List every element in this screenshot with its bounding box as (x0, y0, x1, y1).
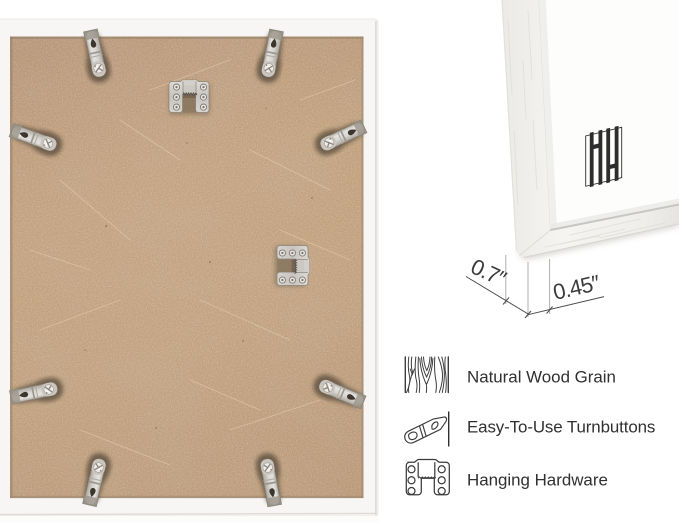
svg-text:Natural Wood Grain: Natural Wood Grain (467, 367, 616, 386)
svg-text:0.7″: 0.7″ (467, 254, 510, 292)
svg-text:Hanging Hardware: Hanging Hardware (467, 470, 608, 489)
svg-text:0.45″: 0.45″ (551, 270, 603, 305)
svg-text:Easy-To-Use Turnbuttons: Easy-To-Use Turnbuttons (467, 417, 655, 436)
